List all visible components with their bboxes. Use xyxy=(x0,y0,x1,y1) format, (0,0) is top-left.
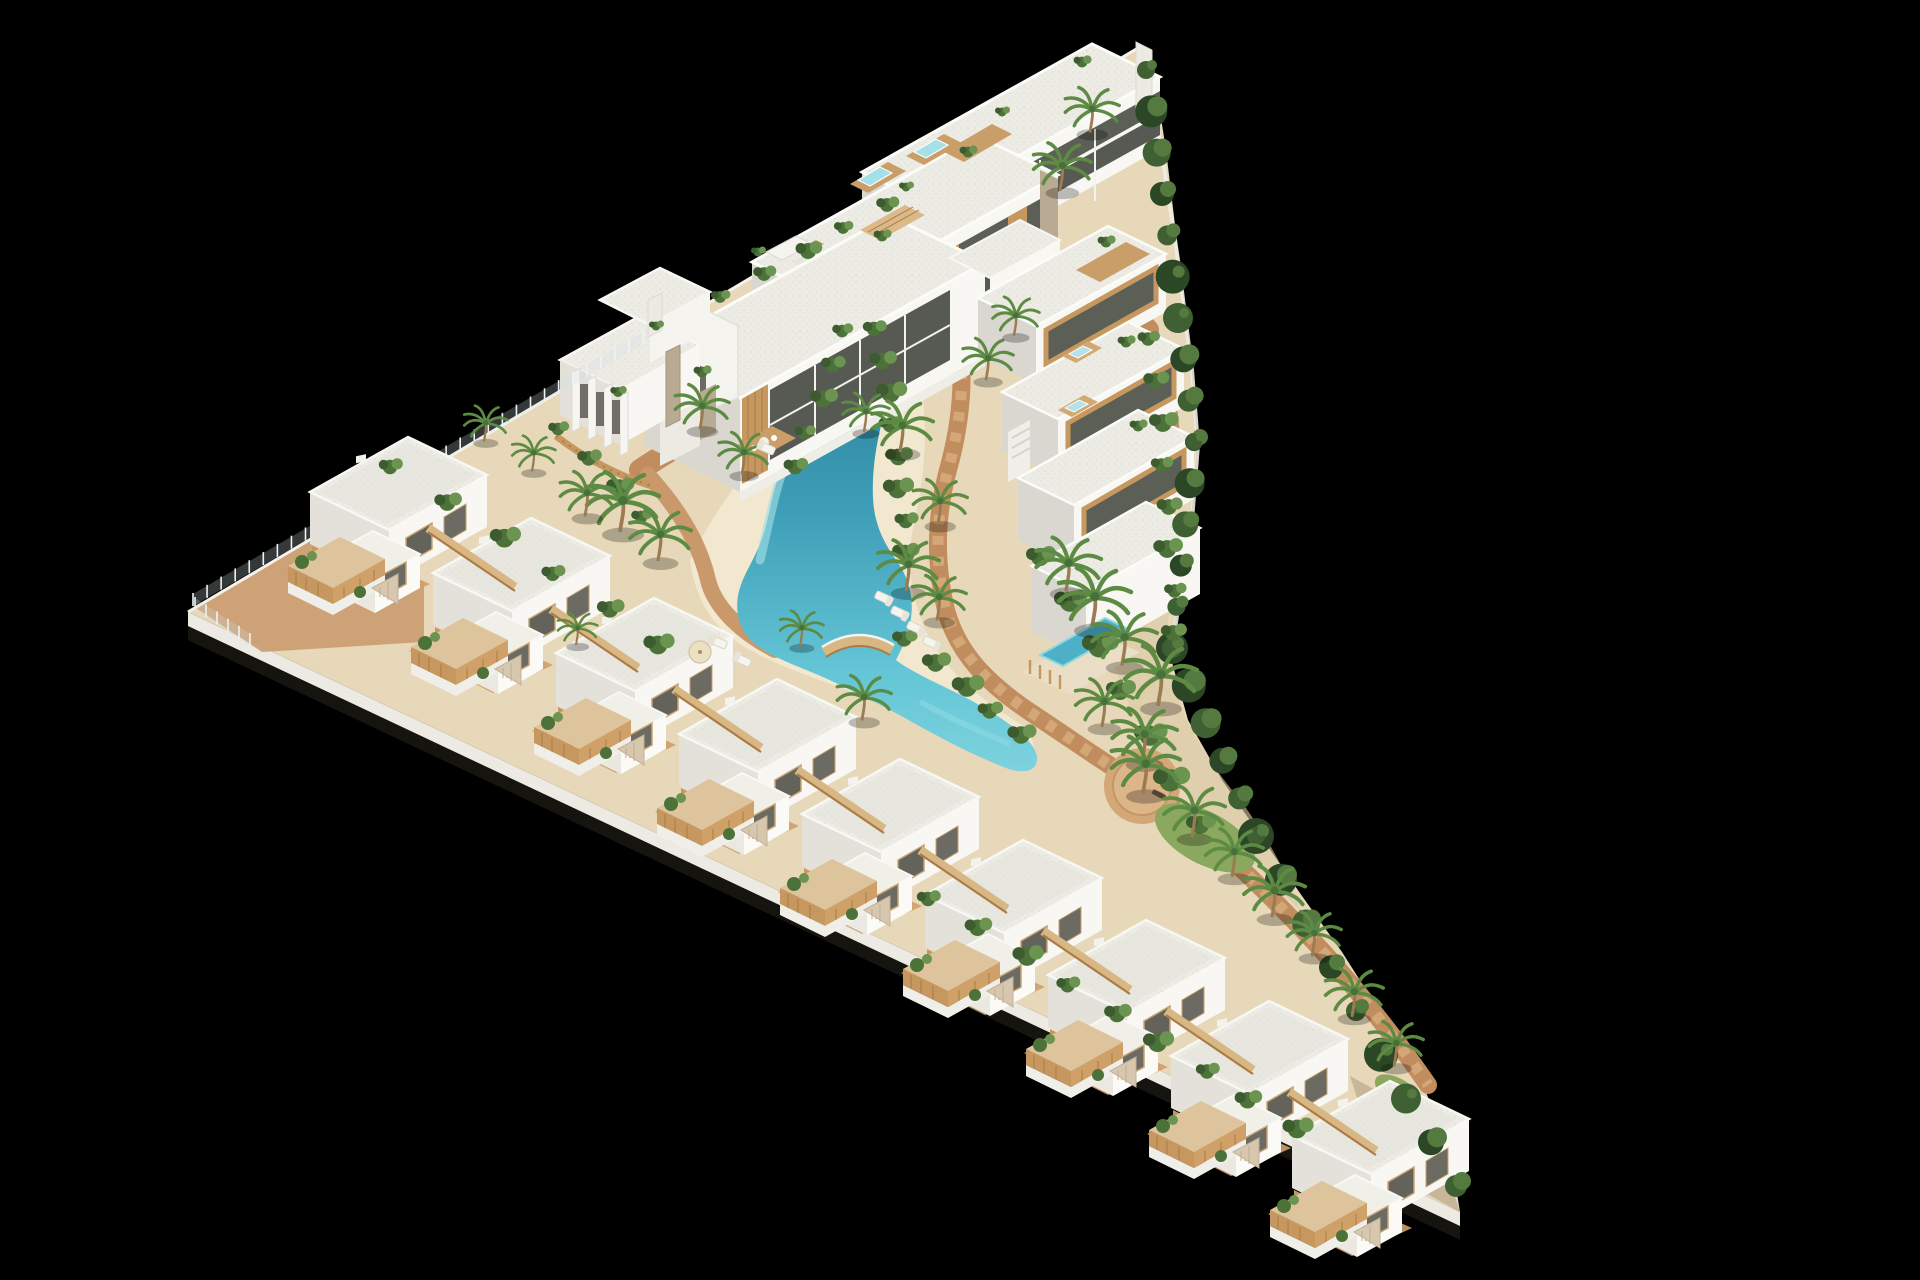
hedge xyxy=(1427,1127,1447,1147)
hedge xyxy=(1329,954,1345,970)
hedge xyxy=(1183,511,1199,527)
hedge xyxy=(1147,96,1167,116)
hedge xyxy=(1160,181,1176,197)
hedge xyxy=(1407,1089,1417,1099)
hedge xyxy=(1257,826,1267,836)
hedge xyxy=(1173,266,1185,278)
hedge xyxy=(1196,433,1204,441)
hedge xyxy=(1156,260,1190,294)
hedge xyxy=(1176,596,1188,608)
hedge xyxy=(1154,139,1172,157)
hedge xyxy=(1180,554,1194,568)
hedge xyxy=(1186,387,1204,405)
hedge xyxy=(1163,303,1193,333)
aerial-render xyxy=(0,0,1920,1280)
parasol xyxy=(689,641,711,663)
hedge xyxy=(1166,223,1180,237)
hedge xyxy=(1219,747,1237,765)
hedge xyxy=(1187,469,1205,487)
hedge xyxy=(1202,708,1222,728)
hedge xyxy=(1237,785,1253,801)
hedge xyxy=(1355,999,1369,1013)
hedge xyxy=(1179,308,1189,318)
hedge xyxy=(1179,344,1199,364)
render-canvas xyxy=(0,0,1920,1280)
hedge xyxy=(1391,1084,1421,1114)
hedge xyxy=(1453,1172,1471,1190)
hedge xyxy=(1147,60,1157,70)
